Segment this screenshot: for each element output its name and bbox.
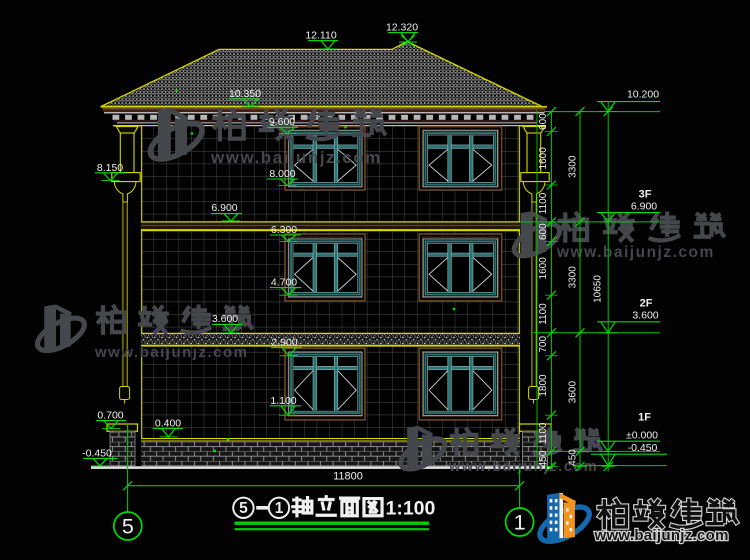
svg-text:±0.000: ±0.000 [626, 430, 658, 442]
svg-text:6.900: 6.900 [211, 202, 237, 214]
svg-text:1F: 1F [638, 412, 651, 424]
svg-text:9.600: 9.600 [269, 116, 295, 128]
svg-text:www.baijunjz.com: www.baijunjz.com [594, 527, 729, 544]
svg-text:600: 600 [538, 113, 549, 130]
svg-text:450: 450 [567, 449, 578, 466]
svg-text:12.320: 12.320 [386, 22, 418, 34]
svg-text:1100: 1100 [538, 192, 549, 214]
svg-text:700: 700 [538, 336, 549, 353]
svg-text:-0.450: -0.450 [82, 448, 112, 460]
svg-text:3300: 3300 [567, 266, 578, 289]
svg-text:5: 5 [239, 500, 248, 517]
svg-text:450: 450 [538, 450, 549, 467]
svg-text:10.200: 10.200 [627, 88, 659, 100]
svg-text:4.700: 4.700 [271, 277, 297, 289]
svg-text:-0.450: -0.450 [628, 442, 658, 454]
svg-text:2F: 2F [640, 298, 653, 310]
svg-text:8.000: 8.000 [269, 168, 295, 180]
svg-text:1: 1 [275, 500, 284, 517]
svg-text:10.350: 10.350 [229, 88, 261, 100]
svg-text:3600: 3600 [567, 381, 578, 404]
svg-text:www.baijunjz.com: www.baijunjz.com [210, 148, 382, 167]
svg-text:1.100: 1.100 [270, 395, 296, 407]
svg-text:1800: 1800 [538, 374, 549, 397]
svg-text:3300: 3300 [567, 155, 578, 178]
svg-text:6.300: 6.300 [271, 224, 297, 236]
svg-text:2.900: 2.900 [271, 336, 297, 348]
svg-text:3F: 3F [639, 188, 652, 200]
svg-text:0.700: 0.700 [97, 410, 123, 422]
svg-text:3.600: 3.600 [212, 313, 238, 325]
svg-text:6.900: 6.900 [631, 200, 657, 212]
svg-text:5: 5 [122, 515, 134, 539]
svg-text:1:100: 1:100 [386, 498, 436, 520]
svg-text:8.150: 8.150 [97, 162, 123, 174]
svg-text:1100: 1100 [538, 422, 549, 444]
svg-text:1600: 1600 [538, 147, 549, 170]
svg-text:0.400: 0.400 [155, 417, 181, 429]
svg-text:600: 600 [538, 223, 549, 240]
svg-text:www.baijunjz.com: www.baijunjz.com [94, 344, 248, 361]
svg-text:1100: 1100 [538, 303, 549, 325]
svg-text:1600: 1600 [538, 257, 549, 280]
svg-text:12.110: 12.110 [305, 30, 336, 42]
svg-text:3.600: 3.600 [632, 309, 658, 321]
svg-text:1: 1 [514, 511, 526, 535]
svg-text:10650: 10650 [593, 275, 604, 303]
svg-text:11800: 11800 [333, 470, 363, 482]
